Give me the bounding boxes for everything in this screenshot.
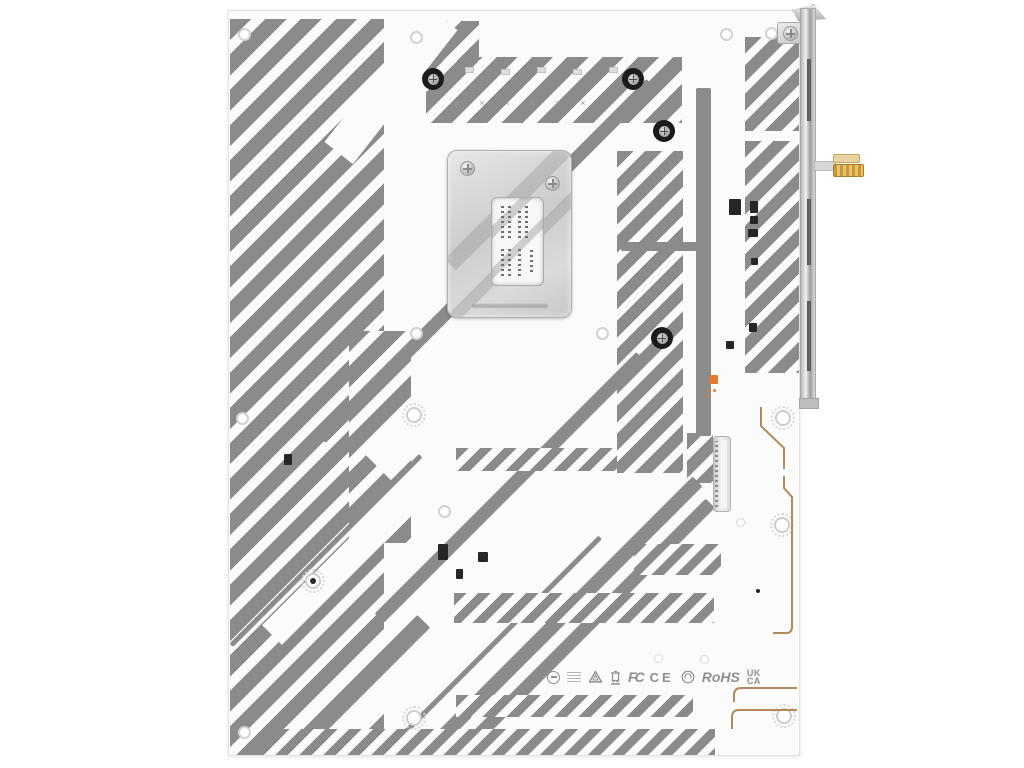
via-hole: [736, 518, 745, 527]
smd-pad: [537, 67, 546, 73]
antenna-sma-connector: [833, 164, 864, 177]
stripe-patch-bar-end: [687, 433, 713, 483]
smd-pad: [501, 69, 510, 75]
solder-pad-column: [518, 208, 521, 238]
hatch-bar: [634, 544, 721, 575]
stripe-region-center-right: [617, 151, 683, 473]
hatch-bar: [456, 448, 617, 471]
standoff-center: [310, 578, 316, 584]
heatsink-screw: [622, 68, 644, 90]
fiducial-x-icon: ×: [530, 99, 535, 108]
smd-component: [284, 454, 292, 465]
orange-component: [709, 375, 718, 384]
backplate-screw: [460, 161, 475, 176]
backplate-screw: [545, 176, 560, 191]
heatsink-screw: [422, 68, 444, 90]
smd-component: [756, 589, 760, 593]
ukca-mark: UK CA: [747, 669, 761, 685]
mounting-hole: [720, 28, 733, 41]
mounting-hole: [238, 726, 251, 739]
smd-component: [726, 341, 734, 349]
connector-pins: [715, 441, 718, 507]
mounting-hole: [596, 327, 609, 340]
heatsink-screw: [651, 327, 673, 349]
photo-stage: × × × × × ×: [0, 0, 1024, 768]
solder-pad-column: [518, 246, 521, 276]
recycle-circle-icon: [681, 670, 695, 684]
io-shield-bracket: [800, 8, 816, 400]
heatsink-screw: [653, 120, 675, 142]
recycle-triangle-icon: [588, 670, 603, 684]
connector-face: [721, 440, 727, 508]
orange-dot: [713, 389, 716, 392]
smd-component: [749, 323, 757, 332]
certification-row: FC CE RoHS UK CA: [547, 667, 761, 687]
smd-component: [456, 569, 463, 579]
backplate-etched-text: [472, 304, 548, 308]
standoff-hole: [305, 573, 321, 589]
io-bracket-screw: [783, 26, 798, 41]
mounting-hole: [775, 410, 791, 426]
backplate-window: [491, 197, 544, 286]
mounting-hole: [236, 412, 249, 425]
fiducial-x-icon: ×: [505, 99, 510, 108]
bracket-shadow: [807, 199, 811, 265]
hatch-bar: [456, 695, 693, 717]
stripe-region-right-lower: [745, 141, 800, 373]
mounting-hole: [410, 31, 423, 44]
mounting-hole: [410, 327, 423, 340]
bracket-shadow: [807, 301, 811, 371]
smd-pad: [465, 67, 474, 73]
mounting-hole: [406, 407, 422, 423]
fiducial-row: × × × × × ×: [454, 99, 586, 108]
fcc-mark: FC: [628, 669, 643, 685]
smd-component: [748, 229, 758, 237]
cpu-socket-backplate: [447, 150, 572, 318]
smd-component: [478, 552, 488, 562]
fiducial-x-icon: ×: [479, 99, 484, 108]
mounting-hole: [774, 517, 790, 533]
pcb-trace-horizontal: [621, 242, 699, 251]
antenna-connector-base: [833, 154, 860, 163]
solder-pad-column: [501, 206, 504, 238]
weee-bin-icon: [610, 670, 621, 685]
power-circle-icon: [547, 671, 560, 684]
orange-dot: [707, 395, 710, 398]
orange-dot: [707, 389, 710, 392]
mounting-hole: [776, 708, 792, 724]
smd-pad: [573, 69, 582, 75]
bracket-shadow: [807, 59, 811, 121]
motherboard-pcb: × × × × × ×: [228, 10, 800, 756]
io-bracket-foot: [799, 398, 819, 409]
solder-pad-column: [525, 206, 528, 238]
via-hole: [654, 654, 663, 663]
ce-mark: CE: [650, 670, 674, 685]
pcb-trace: [451, 499, 715, 756]
solder-pad-column: [508, 246, 511, 276]
smd-component: [438, 544, 448, 560]
fine-print-block: [567, 672, 581, 682]
hatch-bar: [454, 593, 714, 623]
fiducial-x-icon: ×: [454, 99, 459, 108]
solder-pad-column: [530, 250, 533, 272]
smd-component: [729, 199, 741, 215]
fiducial-x-icon: ×: [580, 99, 585, 108]
stripe-region-right-upper: [745, 37, 800, 131]
hatch-bar: [253, 729, 715, 755]
smd-pad: [609, 67, 618, 73]
smd-component: [750, 201, 758, 213]
solder-pad-column: [501, 246, 504, 276]
mounting-hole: [438, 505, 451, 518]
mounting-hole: [406, 710, 422, 726]
fiducial-x-icon: ×: [555, 99, 560, 108]
rohs-mark: RoHS: [702, 669, 740, 685]
smd-component: [750, 216, 758, 224]
mounting-hole: [238, 28, 251, 41]
via-hole: [700, 655, 709, 664]
smd-component: [751, 258, 758, 265]
m2-slot-connector: [713, 436, 731, 512]
solder-pad-column: [508, 206, 511, 238]
